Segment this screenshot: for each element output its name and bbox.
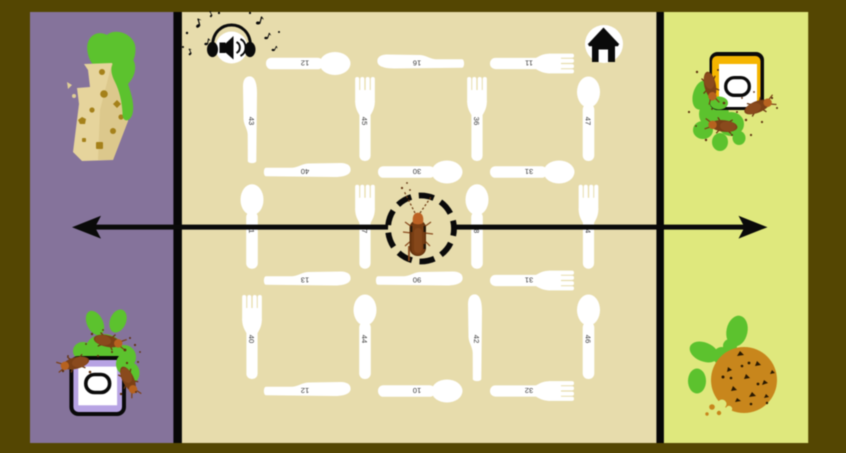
svg-text:44: 44 [360, 335, 369, 343]
svg-text:47: 47 [584, 117, 593, 125]
svg-text:30: 30 [413, 167, 421, 176]
svg-text:12: 12 [301, 386, 309, 395]
svg-text:46: 46 [584, 335, 593, 343]
svg-text:42: 42 [472, 335, 481, 343]
svg-text:16: 16 [413, 59, 421, 68]
svg-text:36: 36 [472, 117, 481, 125]
svg-text:90: 90 [413, 276, 421, 285]
svg-text:40: 40 [247, 335, 256, 343]
svg-text:40: 40 [301, 167, 309, 176]
svg-text:10: 10 [413, 386, 421, 395]
svg-text:43: 43 [247, 117, 256, 125]
svg-text:12: 12 [301, 59, 309, 68]
svg-text:45: 45 [360, 117, 369, 125]
svg-text:31: 31 [525, 167, 533, 176]
svg-text:32: 32 [525, 386, 533, 395]
svg-text:13: 13 [301, 276, 309, 285]
svg-text:31: 31 [525, 276, 533, 285]
svg-text:11: 11 [525, 59, 533, 68]
